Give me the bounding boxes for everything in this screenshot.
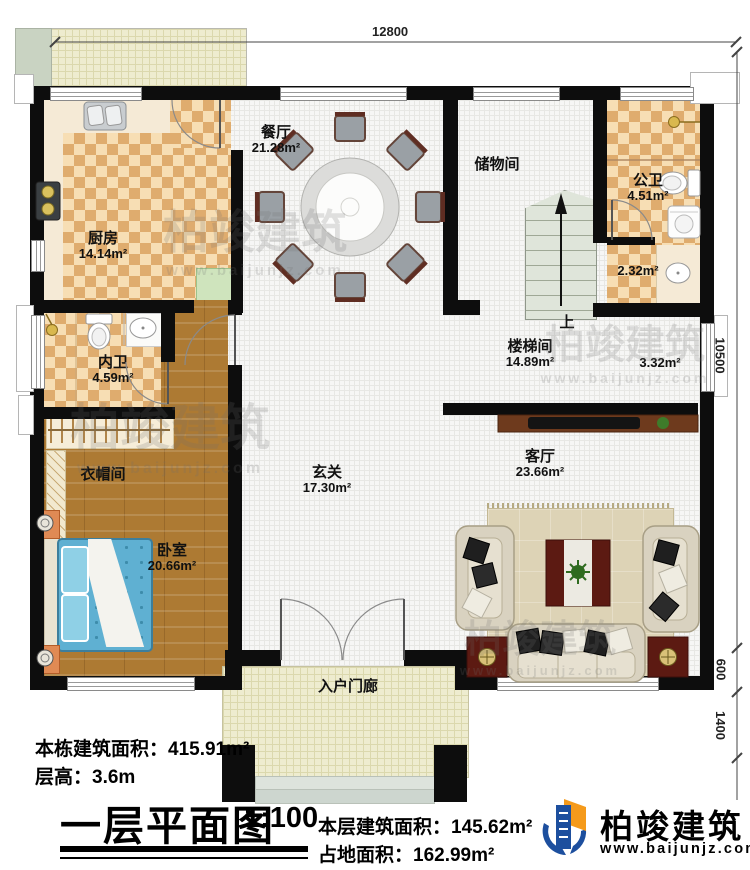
door-arc-kitchen — [172, 100, 220, 148]
door-arc-entry-left — [281, 599, 342, 660]
door-arc-public-bath — [612, 200, 652, 240]
floor-plan-canvas: 12800 10500 600 1400 厨房 14.14m² 餐厅 21.28… — [0, 0, 750, 870]
brand-logo-icon — [536, 793, 594, 859]
door-arc-suite — [185, 315, 235, 365]
annotation-layer — [0, 0, 750, 870]
door-arc-entry-right — [343, 599, 404, 660]
dimension-lines — [50, 37, 742, 800]
door-arc-private-bath — [126, 362, 168, 404]
